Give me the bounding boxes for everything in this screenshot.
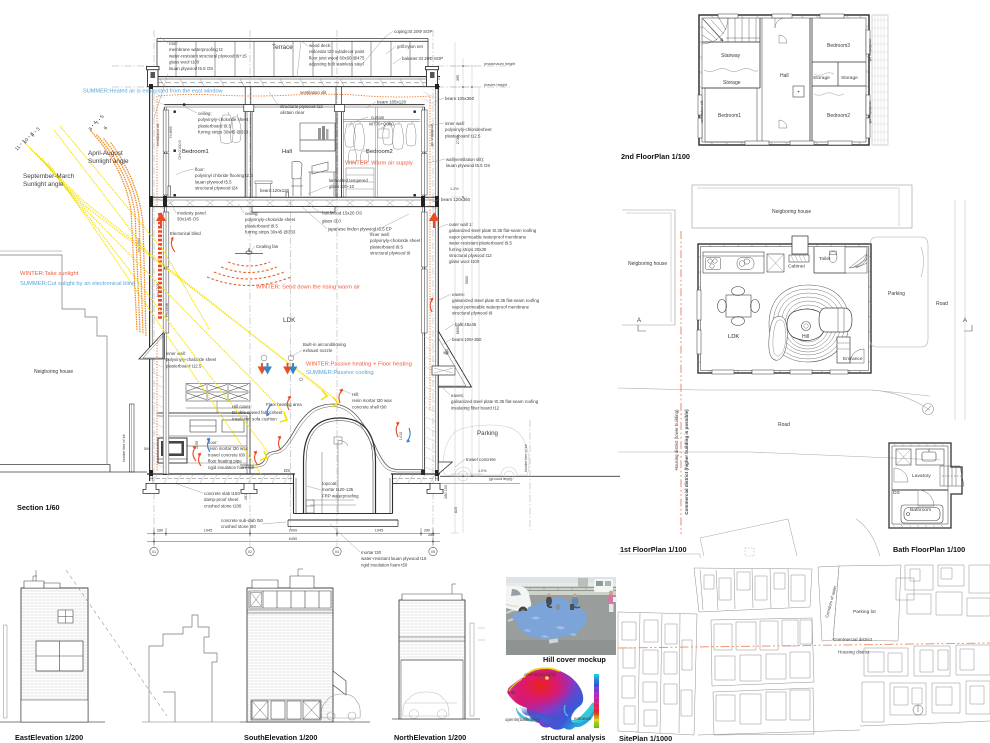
svg-text:lauan plywood t5.5 OS: lauan plywood t5.5 OS bbox=[446, 163, 490, 168]
svg-text:water-resistant structural ply: water-resistant structural plywood t9+15 bbox=[169, 53, 247, 58]
svg-text:Storage: Storage bbox=[841, 75, 858, 81]
svg-text:500: 500 bbox=[144, 447, 150, 451]
svg-text:structural plywood t9: structural plywood t9 bbox=[370, 251, 411, 256]
svg-text:Bedroom2: Bedroom2 bbox=[827, 113, 850, 119]
svg-text:mortar t120-135: mortar t120-135 bbox=[322, 487, 354, 492]
svg-text:Double sewed fabricsheet: Double sewed fabricsheet bbox=[232, 410, 283, 415]
svg-text:inner wall:: inner wall: bbox=[166, 351, 186, 356]
svg-text:plasterboard t9.5: plasterboard t9.5 bbox=[198, 123, 232, 128]
svg-text:LDK: LDK bbox=[728, 334, 739, 340]
svg-text:Bedroom1: Bedroom1 bbox=[718, 113, 741, 119]
svg-text:Bedroom2: Bedroom2 bbox=[366, 149, 393, 155]
svg-text:concrete shell t90: concrete shell t90 bbox=[352, 404, 387, 409]
svg-text:glass t10+10: glass t10+10 bbox=[329, 184, 355, 189]
svg-text:Cealing fan: Cealing fan bbox=[256, 244, 279, 249]
svg-text:grill:nylon net: grill:nylon net bbox=[397, 44, 424, 49]
svg-text:concrete slab t150: concrete slab t150 bbox=[204, 491, 240, 496]
svg-text:furring strips 20x30: furring strips 20x30 bbox=[449, 247, 487, 252]
svg-text:inner wall:: inner wall: bbox=[370, 232, 390, 237]
svg-text:vapor permeable waterproof mem: vapor permeable waterproof membrane bbox=[449, 234, 527, 239]
svg-text:beam:120x120: beam:120x120 bbox=[260, 188, 290, 193]
svg-text:border line of lot: border line of lot bbox=[122, 433, 126, 461]
svg-text:(eaves height: (eaves height bbox=[484, 83, 508, 87]
svg-text:plasterboard t9.5: plasterboard t9.5 bbox=[245, 223, 279, 228]
svg-text:Neigboring house: Neigboring house bbox=[628, 261, 667, 267]
svg-text:polyvinyl chloride flooring t2: polyvinyl chloride flooring t2.0 bbox=[195, 173, 253, 178]
svg-text:September-March: September-March bbox=[23, 173, 75, 180]
svg-text:redcedar t20 xyladecor paint: redcedar t20 xyladecor paint bbox=[309, 49, 365, 54]
svg-text:galvanized steel plate t0.35 f: galvanized steel plate t0.35 flat-seam r… bbox=[451, 399, 539, 404]
svg-text:1945: 1945 bbox=[204, 529, 212, 533]
svg-text:balk:45x45: balk:45x45 bbox=[455, 322, 477, 327]
svg-text:Bedroom1: Bedroom1 bbox=[182, 149, 209, 155]
svg-text:Stairway: Stairway bbox=[721, 53, 741, 59]
svg-text:Neigboring house: Neigboring house bbox=[772, 209, 811, 215]
svg-text:openin(bathroom): openin(bathroom) bbox=[505, 717, 540, 722]
svg-text:exhaust nozzle: exhaust nozzle bbox=[303, 348, 333, 353]
svg-text:Commercial district: Commercial district bbox=[833, 637, 873, 642]
svg-text:Hall: Hall bbox=[780, 73, 789, 79]
svg-text:structural plywood t12: structural plywood t12 bbox=[449, 253, 492, 258]
svg-text:openin(top light): openin(top light) bbox=[524, 672, 556, 677]
svg-text:roof:: roof: bbox=[169, 41, 178, 46]
svg-text:eaves:: eaves: bbox=[451, 393, 464, 398]
svg-text:structural plywood t24: structural plywood t24 bbox=[195, 186, 238, 191]
svg-text:Housing district (lower buildi: Housing district (lower building) bbox=[674, 409, 679, 471]
svg-text:galvanized steel plate t0.35 f: galvanized steel plate t0.35 flat-seam r… bbox=[449, 228, 537, 233]
svg-text:ceiling:: ceiling: bbox=[245, 211, 259, 216]
svg-text:WINTER:Take sunlight: WINTER:Take sunlight bbox=[20, 271, 79, 277]
svg-text:vapor permeable waterproof mem: vapor permeable waterproof membrane bbox=[452, 304, 530, 309]
svg-text:resin mortar t30 wax: resin mortar t30 wax bbox=[352, 398, 393, 403]
svg-text:Neigboring house: Neigboring house bbox=[34, 369, 73, 375]
svg-text:furring strips 30x45 @333: furring strips 30x45 @333 bbox=[198, 130, 249, 135]
svg-text:1410: 1410 bbox=[399, 432, 403, 440]
svg-text:WINTER: Warm air supply: WINTER: Warm air supply bbox=[345, 161, 413, 167]
svg-text:modesty panel:: modesty panel: bbox=[177, 211, 207, 216]
svg-text:X2: X2 bbox=[248, 550, 252, 554]
svg-text:ventilation slit: ventilation slit bbox=[700, 100, 704, 124]
svg-text:1945: 1945 bbox=[375, 529, 383, 533]
svg-text:baluster:St 20Φ SOP: baluster:St 20Φ SOP bbox=[402, 56, 443, 61]
svg-text:Parking: Parking bbox=[888, 291, 905, 297]
svg-text:6600: 6600 bbox=[456, 326, 460, 334]
svg-text:floor:: floor: bbox=[208, 440, 218, 445]
svg-text:Bathroom: Bathroom bbox=[910, 507, 931, 513]
svg-text:Sunlight angle: Sunlight angle bbox=[23, 181, 64, 188]
svg-text:structural analysis: structural analysis bbox=[541, 733, 606, 742]
svg-text:plasterboard t12.5: plasterboard t12.5 bbox=[166, 363, 202, 368]
svg-text:2nd FloorPlan 1/100: 2nd FloorPlan 1/100 bbox=[621, 152, 690, 161]
svg-text:280 150: 280 150 bbox=[444, 485, 448, 499]
svg-text:floor joist wood 60x60 @475: floor joist wood 60x60 @475 bbox=[309, 55, 365, 60]
svg-text:insulating fiber board t12: insulating fiber board t12 bbox=[451, 405, 500, 410]
svg-text:lauan plywood t5.5: lauan plywood t5.5 bbox=[195, 179, 232, 184]
svg-text:280: 280 bbox=[428, 533, 434, 537]
svg-text:Storage: Storage bbox=[723, 80, 741, 86]
svg-text:beam:105+360: beam:105+360 bbox=[452, 337, 482, 342]
svg-text:1st FloorPlan 1/100: 1st FloorPlan 1/100 bbox=[620, 545, 687, 554]
svg-text:Sunlight angle: Sunlight angle bbox=[88, 158, 129, 165]
svg-text:glass t3.0: glass t3.0 bbox=[322, 219, 341, 224]
svg-text:280: 280 bbox=[157, 529, 163, 533]
svg-text:structural plywood t9: structural plywood t9 bbox=[452, 311, 493, 316]
svg-text:SouthElevation 1/200: SouthElevation 1/200 bbox=[244, 733, 317, 742]
svg-text:Insulation sofa cushion: Insulation sofa cushion bbox=[232, 416, 277, 421]
svg-text:curtain: curtain bbox=[371, 115, 385, 120]
svg-text:plasterboard t12.5: plasterboard t12.5 bbox=[445, 133, 481, 138]
svg-text:eaves:: eaves: bbox=[452, 292, 465, 297]
svg-text:mortar t30: mortar t30 bbox=[361, 550, 382, 555]
svg-text:Cabinet: Cabinet bbox=[788, 264, 805, 270]
svg-text:coping:St 20Φ SOP: coping:St 20Φ SOP bbox=[394, 29, 432, 34]
svg-text:2000: 2000 bbox=[289, 529, 297, 533]
svg-text:H=1208: H=1208 bbox=[165, 303, 169, 316]
svg-text:X4: X4 bbox=[335, 550, 339, 554]
svg-text:glass wool t100: glass wool t100 bbox=[449, 259, 480, 264]
svg-text:trowel concrete: trowel concrete bbox=[466, 457, 496, 462]
svg-text:rigid insulation foam t50: rigid insulation foam t50 bbox=[361, 562, 408, 567]
svg-text:825: 825 bbox=[454, 507, 458, 513]
svg-text:Bedroom3: Bedroom3 bbox=[827, 43, 850, 49]
svg-text:concrete sub-slab t50: concrete sub-slab t50 bbox=[221, 518, 264, 523]
svg-text:Housing district: Housing district bbox=[838, 650, 870, 655]
svg-text:Hill:: Hill: bbox=[352, 392, 359, 397]
svg-text:ventilation slit: ventilation slit bbox=[868, 39, 872, 63]
svg-text:Parking lot: Parking lot bbox=[853, 609, 876, 615]
svg-text:damp-proof sheet: damp-proof sheet bbox=[204, 497, 239, 502]
svg-text:X1: X1 bbox=[152, 550, 156, 554]
svg-text:furring strips 30x45 @333: furring strips 30x45 @333 bbox=[245, 230, 296, 235]
svg-text:900: 900 bbox=[443, 351, 449, 355]
svg-text:Electorical blind: Electorical blind bbox=[170, 231, 201, 236]
svg-text:SitePlan 1/1000: SitePlan 1/1000 bbox=[619, 734, 672, 743]
svg-text:adjusting bolt stainless steel: adjusting bolt stainless steel bbox=[309, 62, 364, 67]
svg-text:Hill cover mockup: Hill cover mockup bbox=[543, 655, 606, 664]
svg-text:SUMMER:Heated air is exhausted: SUMMER:Heated air is exhausted from the … bbox=[83, 89, 224, 95]
svg-text:DS: DS bbox=[284, 468, 290, 473]
svg-text:(ground level): (ground level) bbox=[489, 477, 513, 481]
svg-text:laminated tempered: laminated tempered bbox=[329, 178, 368, 183]
svg-text:Lavatory: Lavatory bbox=[912, 473, 931, 479]
svg-text:polyvinyly-chaloride sheet: polyvinyly-chaloride sheet bbox=[166, 357, 217, 362]
svg-text:ceiling:: ceiling: bbox=[198, 111, 212, 116]
svg-text:(maximaum height: (maximaum height bbox=[484, 62, 516, 66]
svg-text:WINTER: Send down the rising w: WINTER: Send down the rising warm air bbox=[256, 285, 360, 291]
svg-text:water-resistant plasterboard t: water-resistant plasterboard t9.5 bbox=[449, 241, 513, 246]
svg-text:floor heating pipe: floor heating pipe bbox=[208, 459, 242, 464]
svg-text:beam 105x120: beam 105x120 bbox=[377, 100, 407, 105]
svg-text:6450: 6450 bbox=[289, 537, 297, 541]
svg-text:wall(ventilation slit):: wall(ventilation slit): bbox=[446, 157, 484, 162]
svg-text:Storage: Storage bbox=[813, 75, 830, 81]
svg-text:LDK: LDK bbox=[283, 317, 296, 324]
svg-text:NorthElevation 1/200: NorthElevation 1/200 bbox=[394, 733, 466, 742]
svg-text:border line of lot: border line of lot bbox=[524, 443, 528, 471]
svg-text:W770+Q080: W770+Q080 bbox=[369, 121, 394, 126]
svg-text:Terrace: Terrace bbox=[272, 44, 293, 51]
svg-text:polyvinyly-choloride sheet: polyvinyly-choloride sheet bbox=[370, 238, 421, 243]
svg-text:sofa: sofa bbox=[507, 690, 516, 695]
svg-text:Section 1/60: Section 1/60 bbox=[17, 503, 60, 512]
svg-text:SUMMER:Cut sulight by an elect: SUMMER:Cut sulight by an electronical bl… bbox=[20, 281, 135, 287]
svg-text:water-resistant lauan plywood: water-resistant lauan plywood t15 bbox=[361, 556, 427, 561]
svg-text:DS: DS bbox=[893, 490, 901, 496]
svg-text:oilstain clear: oilstain clear bbox=[280, 110, 305, 115]
svg-text:beam 105x360: beam 105x360 bbox=[445, 96, 475, 101]
svg-text:floor:: floor: bbox=[195, 167, 205, 172]
svg-text:FRP waterproofing: FRP waterproofing bbox=[322, 493, 359, 498]
svg-text:281: 281 bbox=[244, 494, 248, 500]
svg-text:inner wall:: inner wall: bbox=[445, 121, 465, 126]
svg-text:beam 120x360: beam 120x360 bbox=[441, 197, 471, 202]
svg-text:Hall: Hall bbox=[282, 149, 292, 155]
svg-text:Bath FloorPlan 1/100: Bath FloorPlan 1/100 bbox=[893, 545, 965, 554]
svg-text:CH=2100.5: CH=2100.5 bbox=[178, 140, 182, 159]
svg-text:April-August: April-August bbox=[88, 150, 123, 157]
svg-text:glass wool t100: glass wool t100 bbox=[169, 60, 200, 65]
svg-text:entrance: entrance bbox=[574, 716, 592, 721]
svg-text:280: 280 bbox=[424, 529, 430, 533]
svg-text:395: 395 bbox=[456, 75, 460, 81]
svg-text:galvanized steel plate t0.35 f: galvanized steel plate t0.35 flat-seam r… bbox=[452, 298, 540, 303]
svg-text:30x145 OS: 30x145 OS bbox=[177, 217, 199, 222]
svg-text:plasterboard t9.5: plasterboard t9.5 bbox=[370, 244, 404, 249]
svg-text:A: A bbox=[637, 318, 641, 324]
svg-text:Road: Road bbox=[936, 301, 948, 307]
svg-text:trowel concrete t60: trowel concrete t60 bbox=[208, 452, 246, 457]
svg-text:H=895: H=895 bbox=[169, 126, 173, 137]
svg-text:EastElevation 1/200: EastElevation 1/200 bbox=[15, 733, 83, 742]
svg-text:outer wall 1:: outer wall 1: bbox=[449, 222, 473, 227]
svg-text:9600: 9600 bbox=[465, 276, 469, 284]
svg-text:wood deck:: wood deck: bbox=[309, 43, 331, 48]
svg-text:topcoat: topcoat bbox=[322, 481, 337, 486]
svg-text:WINTER:Passive heating + Floor: WINTER:Passive heating + Floor heating bbox=[306, 362, 412, 368]
svg-text:1.0%: 1.0% bbox=[478, 469, 487, 473]
svg-text:membrane waterproofing t2: membrane waterproofing t2 bbox=[169, 47, 223, 52]
svg-text:Entrance: Entrance bbox=[843, 356, 863, 362]
svg-text:ventilation slit: ventilation slit bbox=[430, 124, 434, 148]
svg-text:lauan plywood t5.5 OS: lauan plywood t5.5 OS bbox=[169, 66, 213, 71]
svg-text:hardwood 15x20 OS: hardwood 15x20 OS bbox=[322, 211, 362, 216]
svg-text:X5: X5 bbox=[431, 550, 435, 554]
svg-text:1.2%: 1.2% bbox=[450, 187, 459, 191]
svg-text:Toilet: Toilet bbox=[819, 256, 831, 262]
svg-text:Built-in airconditioning: Built-in airconditioning bbox=[303, 342, 347, 347]
svg-text:polyvinyly-choloride sheet: polyvinyly-choloride sheet bbox=[198, 117, 249, 122]
svg-text:polyvinyly-chloridesheet: polyvinyly-chloridesheet bbox=[445, 127, 492, 132]
svg-text:ventilation slit: ventilation slit bbox=[868, 101, 872, 125]
svg-text:Parking: Parking bbox=[477, 430, 499, 437]
svg-text:structural plywood t12: structural plywood t12 bbox=[280, 104, 323, 109]
svg-text:crushed stone t100: crushed stone t100 bbox=[204, 503, 242, 508]
svg-text:rigid insulation foam t50: rigid insulation foam t50 bbox=[208, 465, 255, 470]
svg-text:Road: Road bbox=[778, 422, 790, 428]
svg-text:SUMMER:Passive cooling: SUMMER:Passive cooling bbox=[306, 370, 374, 376]
svg-text:Hill: Hill bbox=[802, 334, 809, 340]
svg-text:Commercial district (higher bu: Commercial district (higher building is … bbox=[684, 409, 689, 515]
svg-text:polyvinyly-choloride sheet: polyvinyly-choloride sheet bbox=[245, 217, 296, 222]
svg-text:crushed stone t50: crushed stone t50 bbox=[221, 524, 256, 529]
